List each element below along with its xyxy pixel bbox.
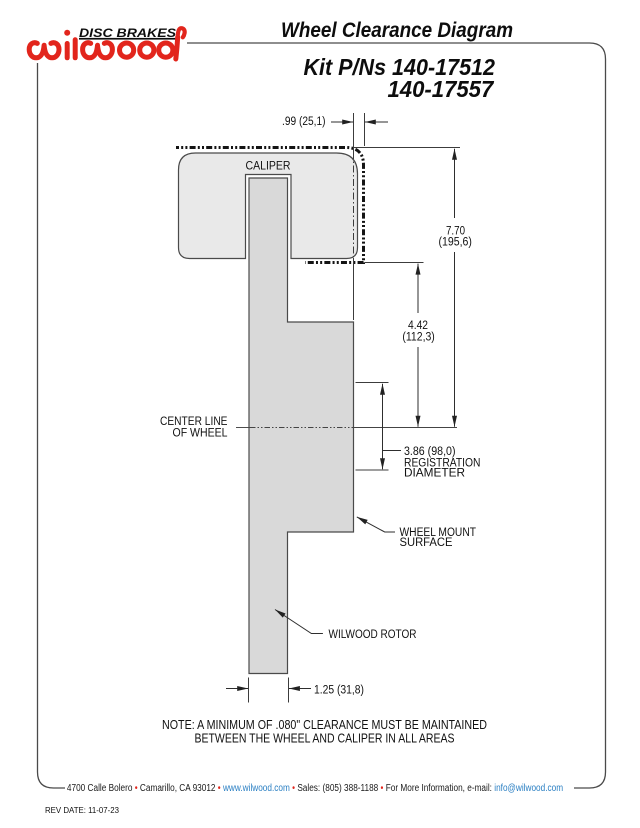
- svg-text:NOTE: A MINIMUM OF .080" CLEAR: NOTE: A MINIMUM OF .080" CLEARANCE MUST …: [162, 718, 487, 732]
- svg-text:BETWEEN THE WHEEL AND CALIPER: BETWEEN THE WHEEL AND CALIPER IN ALL ARE…: [195, 732, 455, 746]
- svg-text:1.25 (31,8): 1.25 (31,8): [314, 684, 364, 696]
- svg-text:CENTER LINE: CENTER LINE: [160, 416, 228, 428]
- svg-text:DIAMETER: DIAMETER: [404, 468, 465, 480]
- svg-text:CALIPER: CALIPER: [246, 159, 291, 173]
- svg-text:SURFACE: SURFACE: [400, 537, 453, 549]
- svg-text:(112,3): (112,3): [402, 332, 435, 344]
- svg-text:.99 (25,1): .99 (25,1): [282, 116, 326, 128]
- svg-text:140-17557: 140-17557: [388, 76, 495, 102]
- svg-text:Wheel Clearance Diagram: Wheel Clearance Diagram: [281, 19, 513, 42]
- svg-text:4.42: 4.42: [408, 320, 428, 332]
- svg-text:(195,6): (195,6): [439, 237, 473, 249]
- svg-text:WILWOOD ROTOR: WILWOOD ROTOR: [329, 629, 417, 641]
- svg-text:OF WHEEL: OF WHEEL: [173, 427, 229, 439]
- svg-text:REV DATE: 11-07-23: REV DATE: 11-07-23: [45, 805, 119, 815]
